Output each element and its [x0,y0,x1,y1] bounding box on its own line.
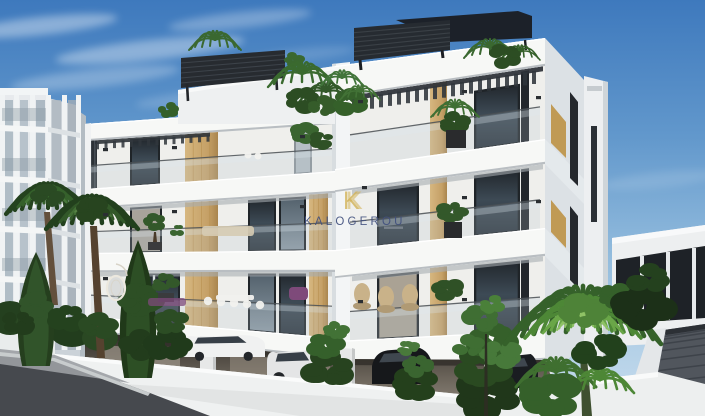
svg-text:K: K [343,187,360,215]
svg-text:KALOGEROU: KALOGEROU [304,216,406,228]
